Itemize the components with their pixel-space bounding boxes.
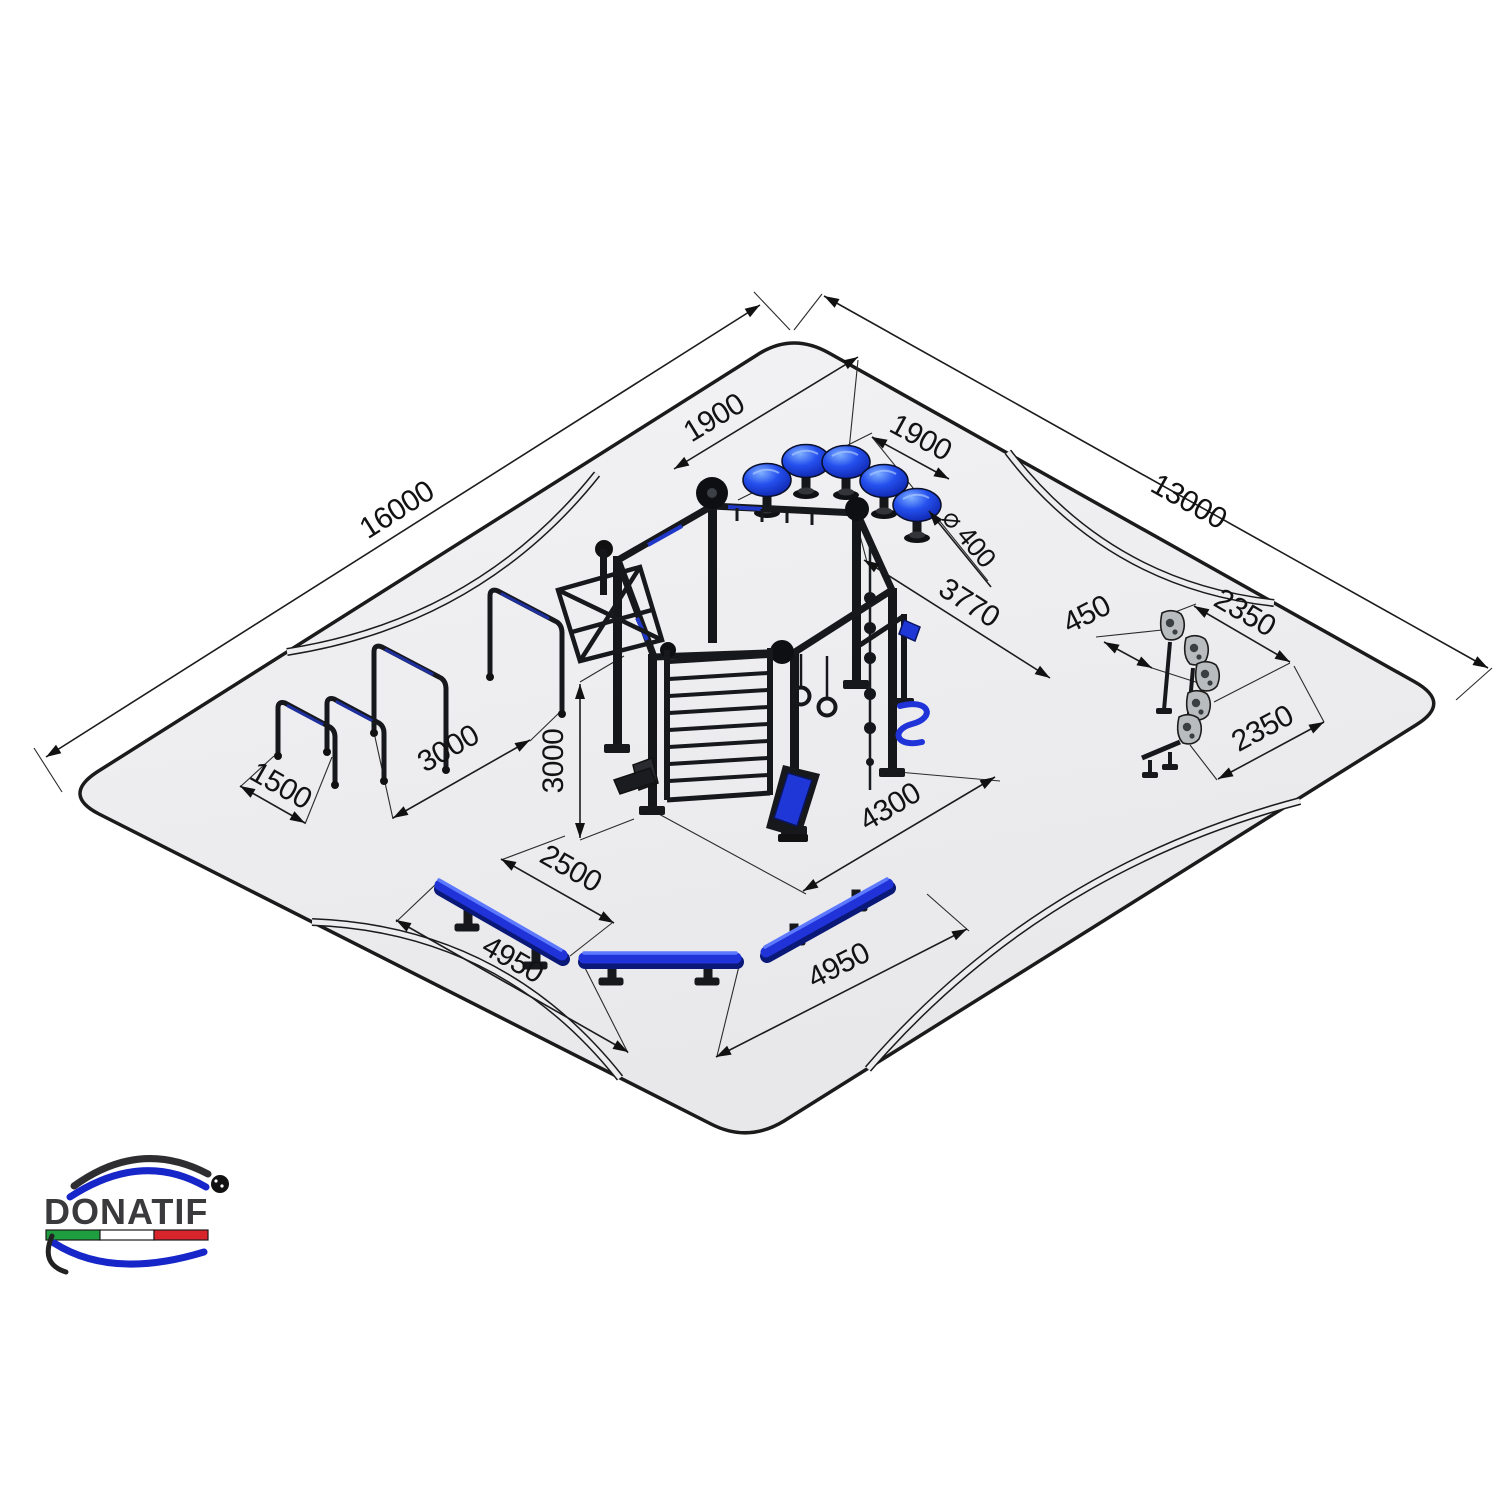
climbing-pod-icon [1178,715,1202,744]
brand-flag [46,1230,208,1240]
climbing-pod-icon [1161,611,1185,640]
dimension-label: 3000 [537,729,570,794]
registered-badge [211,1175,229,1193]
dimension-label: 13000 [1145,468,1232,536]
logo-underswoosh-blue-icon [54,1243,204,1264]
climbing-pod-icon [1185,636,1209,665]
logo-group: DONATIF [44,1159,229,1272]
witness-line [1456,668,1492,700]
dimension-arrow-icon [745,305,760,317]
witness-line [794,294,822,330]
isometric-plan-svg: 160001300019001900⌀ 40037704502350235015… [0,0,1500,1500]
dimension-arrow-icon [824,296,840,308]
dimension-arrow-icon [1472,656,1488,668]
rig-wheel-icon [770,640,794,664]
brand-name: DONATIF [44,1191,208,1232]
climbing-pod-icon [1196,662,1220,691]
site-plan-canvas: 160001300019001900⌀ 40037704502350235015… [0,0,1500,1500]
witness-line [754,292,790,330]
rig-wheel-icon [845,497,869,521]
dimension-arrow-icon [46,745,61,757]
